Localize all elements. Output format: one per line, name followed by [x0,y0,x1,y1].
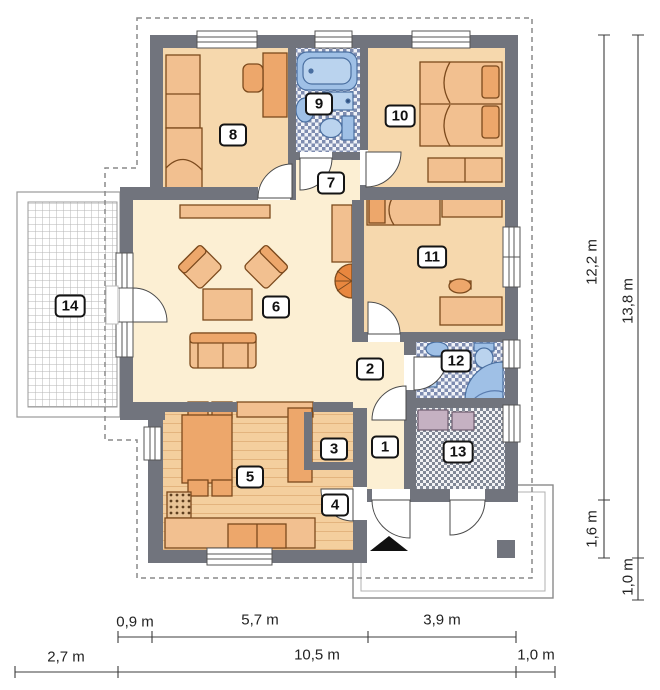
window-icon [197,31,257,48]
cabinet-icon [332,205,352,262]
washing-machine-icon [418,410,448,430]
dim-right-1-6: 1,6 m [584,510,601,548]
coffee-table-icon [203,289,252,320]
dim-bottom-10-5: 10,5 m [294,647,340,664]
desk-icon [263,53,287,117]
window-icon [116,253,133,288]
room-label-12: 12 [441,350,472,373]
toilet-icon [320,119,342,138]
wardrobe-icon [166,55,200,128]
stool-icon [449,279,471,293]
room-label-1: 1 [371,436,399,459]
dim-right-1-0: 1,0 m [620,558,637,596]
pillow-icon [482,106,499,138]
dim-bottom-0-9: 0,9 m [116,614,154,631]
window-icon [503,340,520,368]
room-label-7: 7 [317,172,345,195]
chair-icon [212,480,232,496]
desk-icon [440,297,502,325]
room-label-11: 11 [417,246,447,269]
terrace-step [106,286,118,324]
room-label-5: 5 [236,466,264,489]
porch-pillar [497,540,515,558]
dining-table-icon [182,415,232,483]
floor-plan-canvas: 1 2 3 4 5 6 7 8 9 10 11 12 13 14 12,2 m … [0,0,660,690]
dim-bottom-5-7: 5,7 m [241,612,279,629]
utility-room-appliances [418,410,474,430]
chair-icon [243,64,263,92]
room-label-6: 6 [262,296,290,319]
room-label-4: 4 [321,494,349,517]
room-label-13: 13 [443,441,474,464]
dim-bottom-3-9: 3,9 m [423,612,461,629]
dim-bottom-2-7: 2,7 m [47,649,85,666]
room-label-3: 3 [320,438,348,461]
room-label-8: 8 [219,124,247,147]
window-icon [116,322,133,357]
window-icon [412,31,470,48]
window-icon [207,548,272,565]
window-icon [503,405,520,442]
dryer-icon [452,412,474,430]
window-icon [144,427,161,460]
toilet-tank-icon [342,116,354,140]
tv-bench-icon [180,205,270,218]
hob-icon [167,492,191,518]
pillow-icon [369,197,385,223]
pillow-icon [482,66,499,98]
room-label-2: 2 [356,358,384,381]
room-10-furniture [420,62,502,182]
sofa-icon [190,333,256,368]
window-icon [315,31,352,48]
room-label-14: 14 [55,295,86,318]
window-icon [503,227,520,287]
room-label-9: 9 [305,93,333,116]
dim-right-13-8: 13,8 m [620,278,637,324]
dim-bottom-1-0: 1,0 m [517,647,555,664]
dim-right-12-2: 12,2 m [584,239,601,285]
room-label-10: 10 [385,105,416,128]
